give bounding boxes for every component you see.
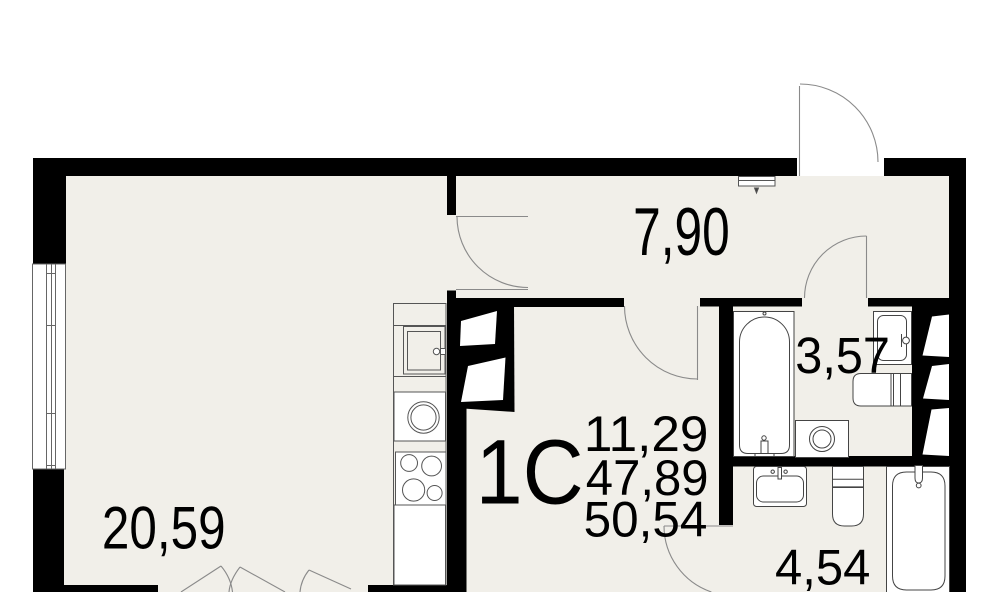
svg-text:7,90: 7,90: [633, 194, 730, 271]
svg-text:50,54: 50,54: [584, 491, 708, 547]
svg-text:1С: 1С: [476, 420, 584, 523]
svg-text:3,57: 3,57: [795, 327, 890, 385]
svg-text:4,54: 4,54: [775, 540, 870, 592]
svg-text:20,59: 20,59: [102, 494, 226, 562]
